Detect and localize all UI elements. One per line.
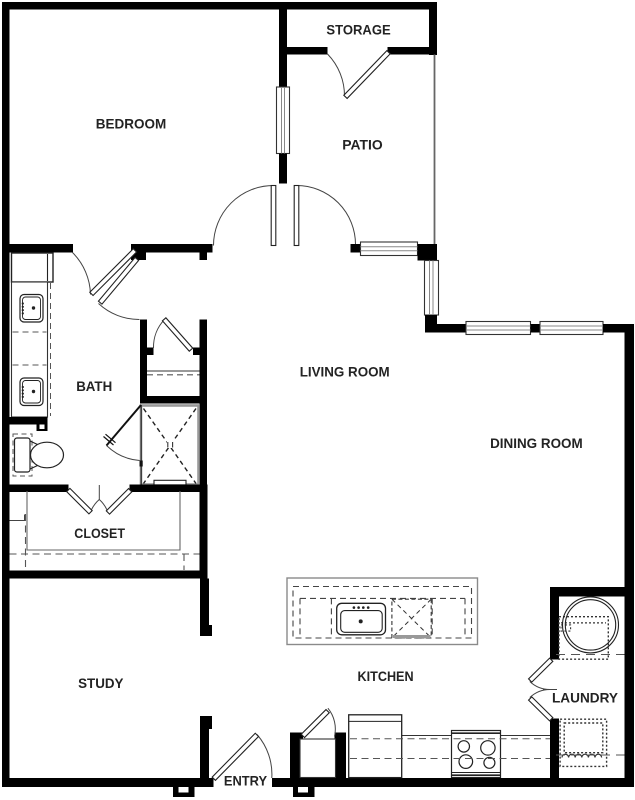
svg-text:PATIO: PATIO — [342, 137, 383, 153]
svg-text:CLOSET: CLOSET — [74, 525, 125, 541]
svg-text:ENTRY: ENTRY — [224, 773, 268, 789]
svg-text:LAUNDRY: LAUNDRY — [552, 690, 619, 706]
svg-text:DINING ROOM: DINING ROOM — [490, 435, 583, 451]
svg-text:STUDY: STUDY — [78, 675, 124, 691]
svg-text:KITCHEN: KITCHEN — [358, 668, 414, 684]
svg-text:BATH: BATH — [76, 378, 112, 394]
svg-text:STORAGE: STORAGE — [326, 21, 390, 37]
svg-text:BEDROOM: BEDROOM — [96, 116, 167, 132]
svg-text:LIVING ROOM: LIVING ROOM — [300, 363, 390, 379]
